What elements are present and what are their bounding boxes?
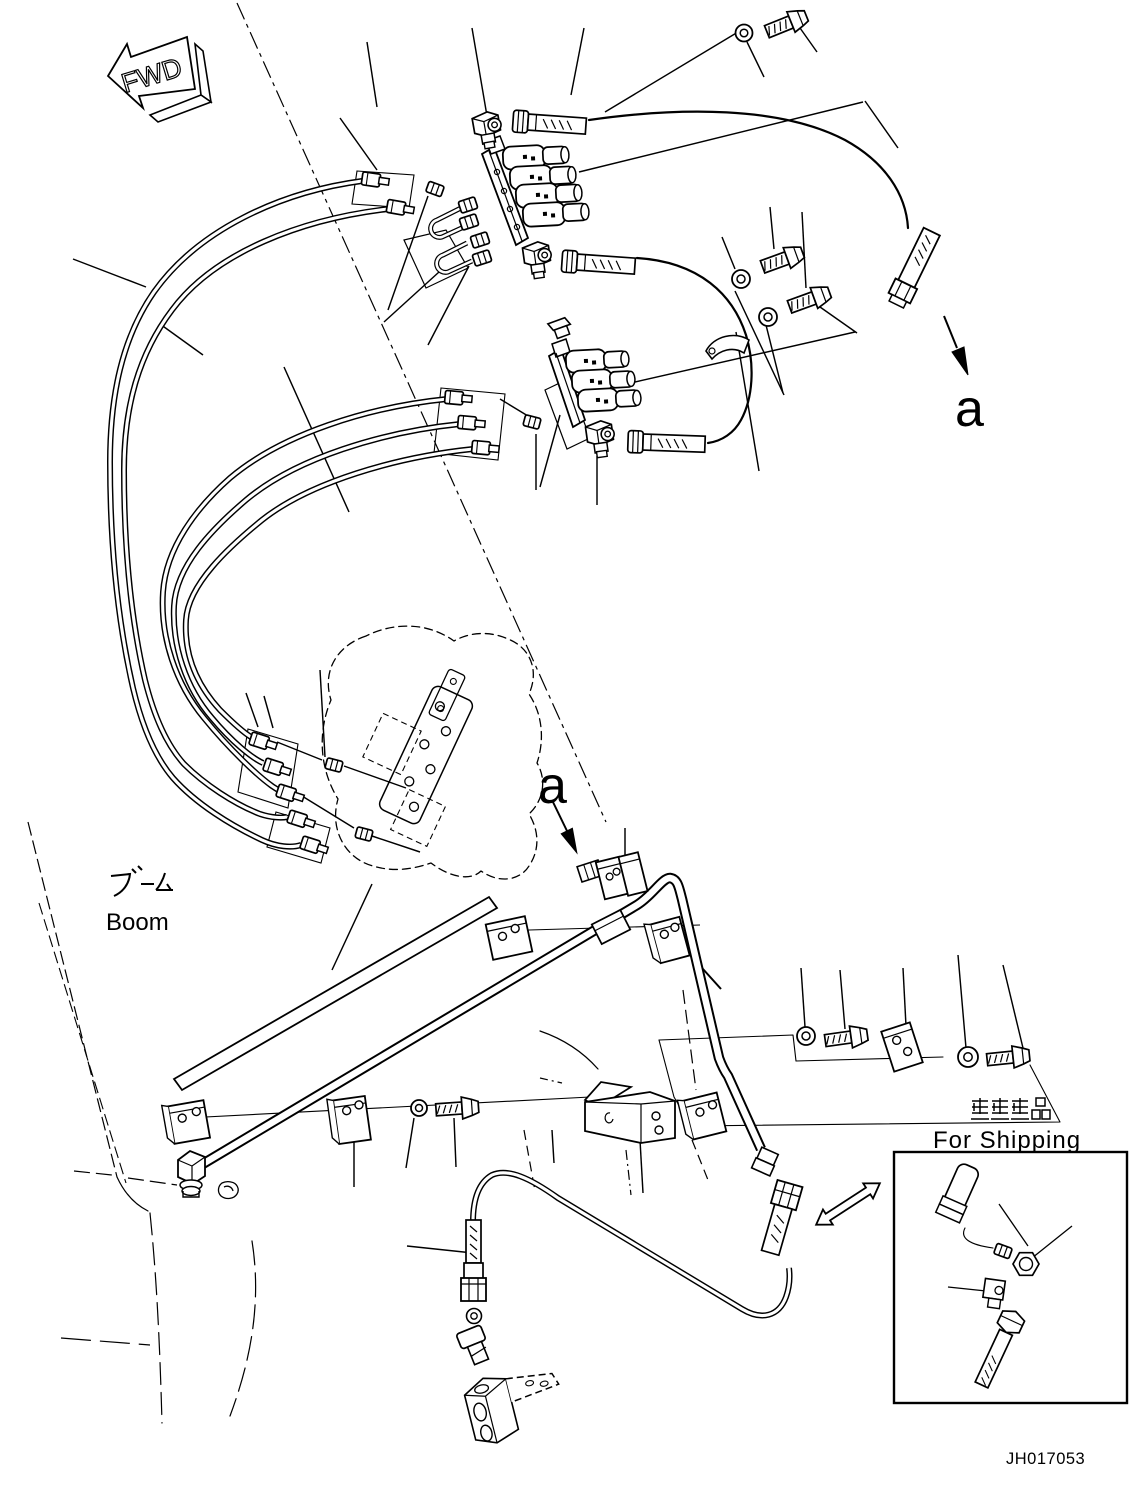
svg-text:For Shipping: For Shipping [933, 1127, 1081, 1154]
svg-text:Boom: Boom [106, 909, 169, 936]
svg-text:a: a [538, 757, 567, 815]
svg-text:JH017053: JH017053 [1006, 1450, 1085, 1468]
svg-text:a: a [955, 380, 984, 438]
